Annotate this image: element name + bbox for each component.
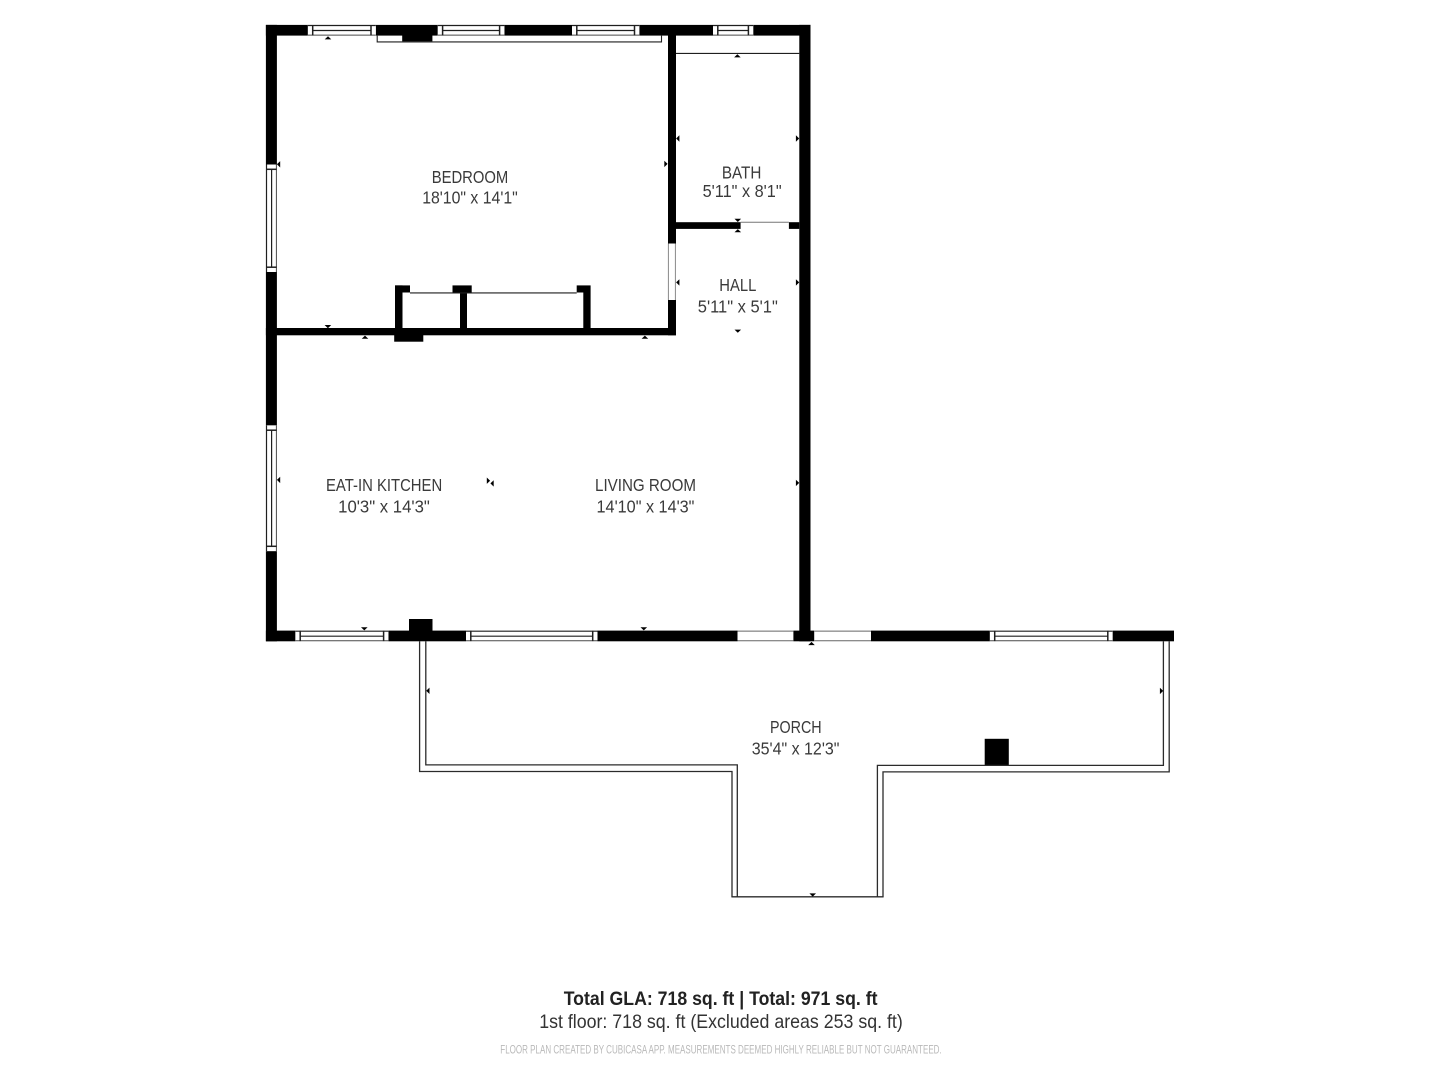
svg-text:Total GLA: 718 sq. ft | Total:: Total GLA: 718 sq. ft | Total: 971 sq. f… [564, 988, 878, 1010]
svg-text:14'10" x 14'3": 14'10" x 14'3" [597, 497, 695, 517]
svg-text:10'3" x 14'3": 10'3" x 14'3" [338, 497, 430, 517]
svg-text:BATH: BATH [722, 163, 762, 183]
svg-text:1st floor: 718 sq. ft (Exclude: 1st floor: 718 sq. ft (Excluded areas 25… [539, 1011, 903, 1033]
svg-text:BEDROOM: BEDROOM [432, 167, 509, 187]
svg-text:35'4" x 12'3": 35'4" x 12'3" [752, 738, 840, 758]
svg-text:18'10" x 14'1": 18'10" x 14'1" [422, 188, 518, 208]
svg-text:5'11" x 8'1": 5'11" x 8'1" [703, 181, 782, 201]
svg-text:EAT-IN KITCHEN: EAT-IN KITCHEN [326, 475, 442, 495]
svg-text:LIVING ROOM: LIVING ROOM [595, 475, 696, 495]
svg-text:HALL: HALL [719, 275, 756, 295]
svg-text:FLOOR PLAN CREATED BY CUBICASA: FLOOR PLAN CREATED BY CUBICASA APP. MEAS… [500, 1045, 941, 1057]
svg-text:PORCH: PORCH [770, 717, 822, 737]
svg-text:5'11" x 5'1": 5'11" x 5'1" [698, 297, 778, 317]
